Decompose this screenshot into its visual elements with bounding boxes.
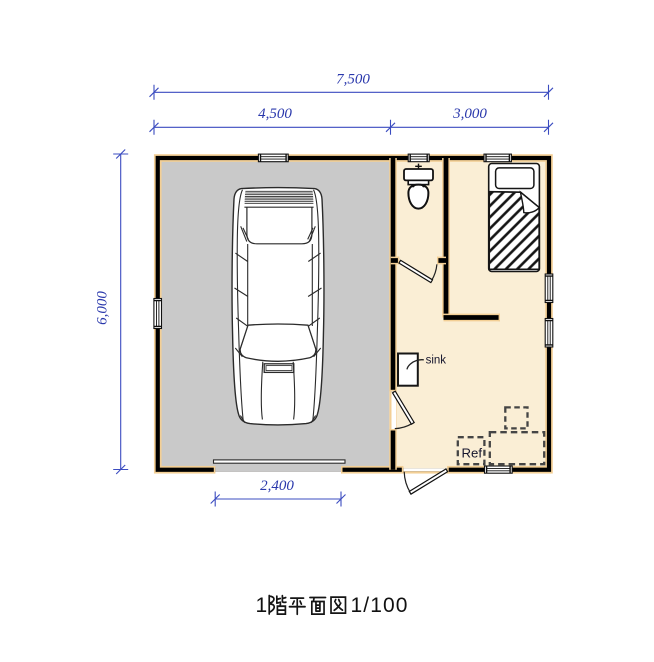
svg-text:2,400: 2,400: [260, 478, 294, 494]
svg-text:1/100: 1/100: [351, 594, 409, 617]
svg-text:3,000: 3,000: [452, 106, 487, 122]
svg-text:4,500: 4,500: [258, 106, 292, 122]
svg-text:sink: sink: [426, 354, 447, 366]
svg-text:7,500: 7,500: [336, 72, 370, 88]
svg-text:6,000: 6,000: [95, 291, 111, 325]
svg-text:1: 1: [256, 594, 268, 617]
svg-text:Ref: Ref: [462, 446, 483, 461]
